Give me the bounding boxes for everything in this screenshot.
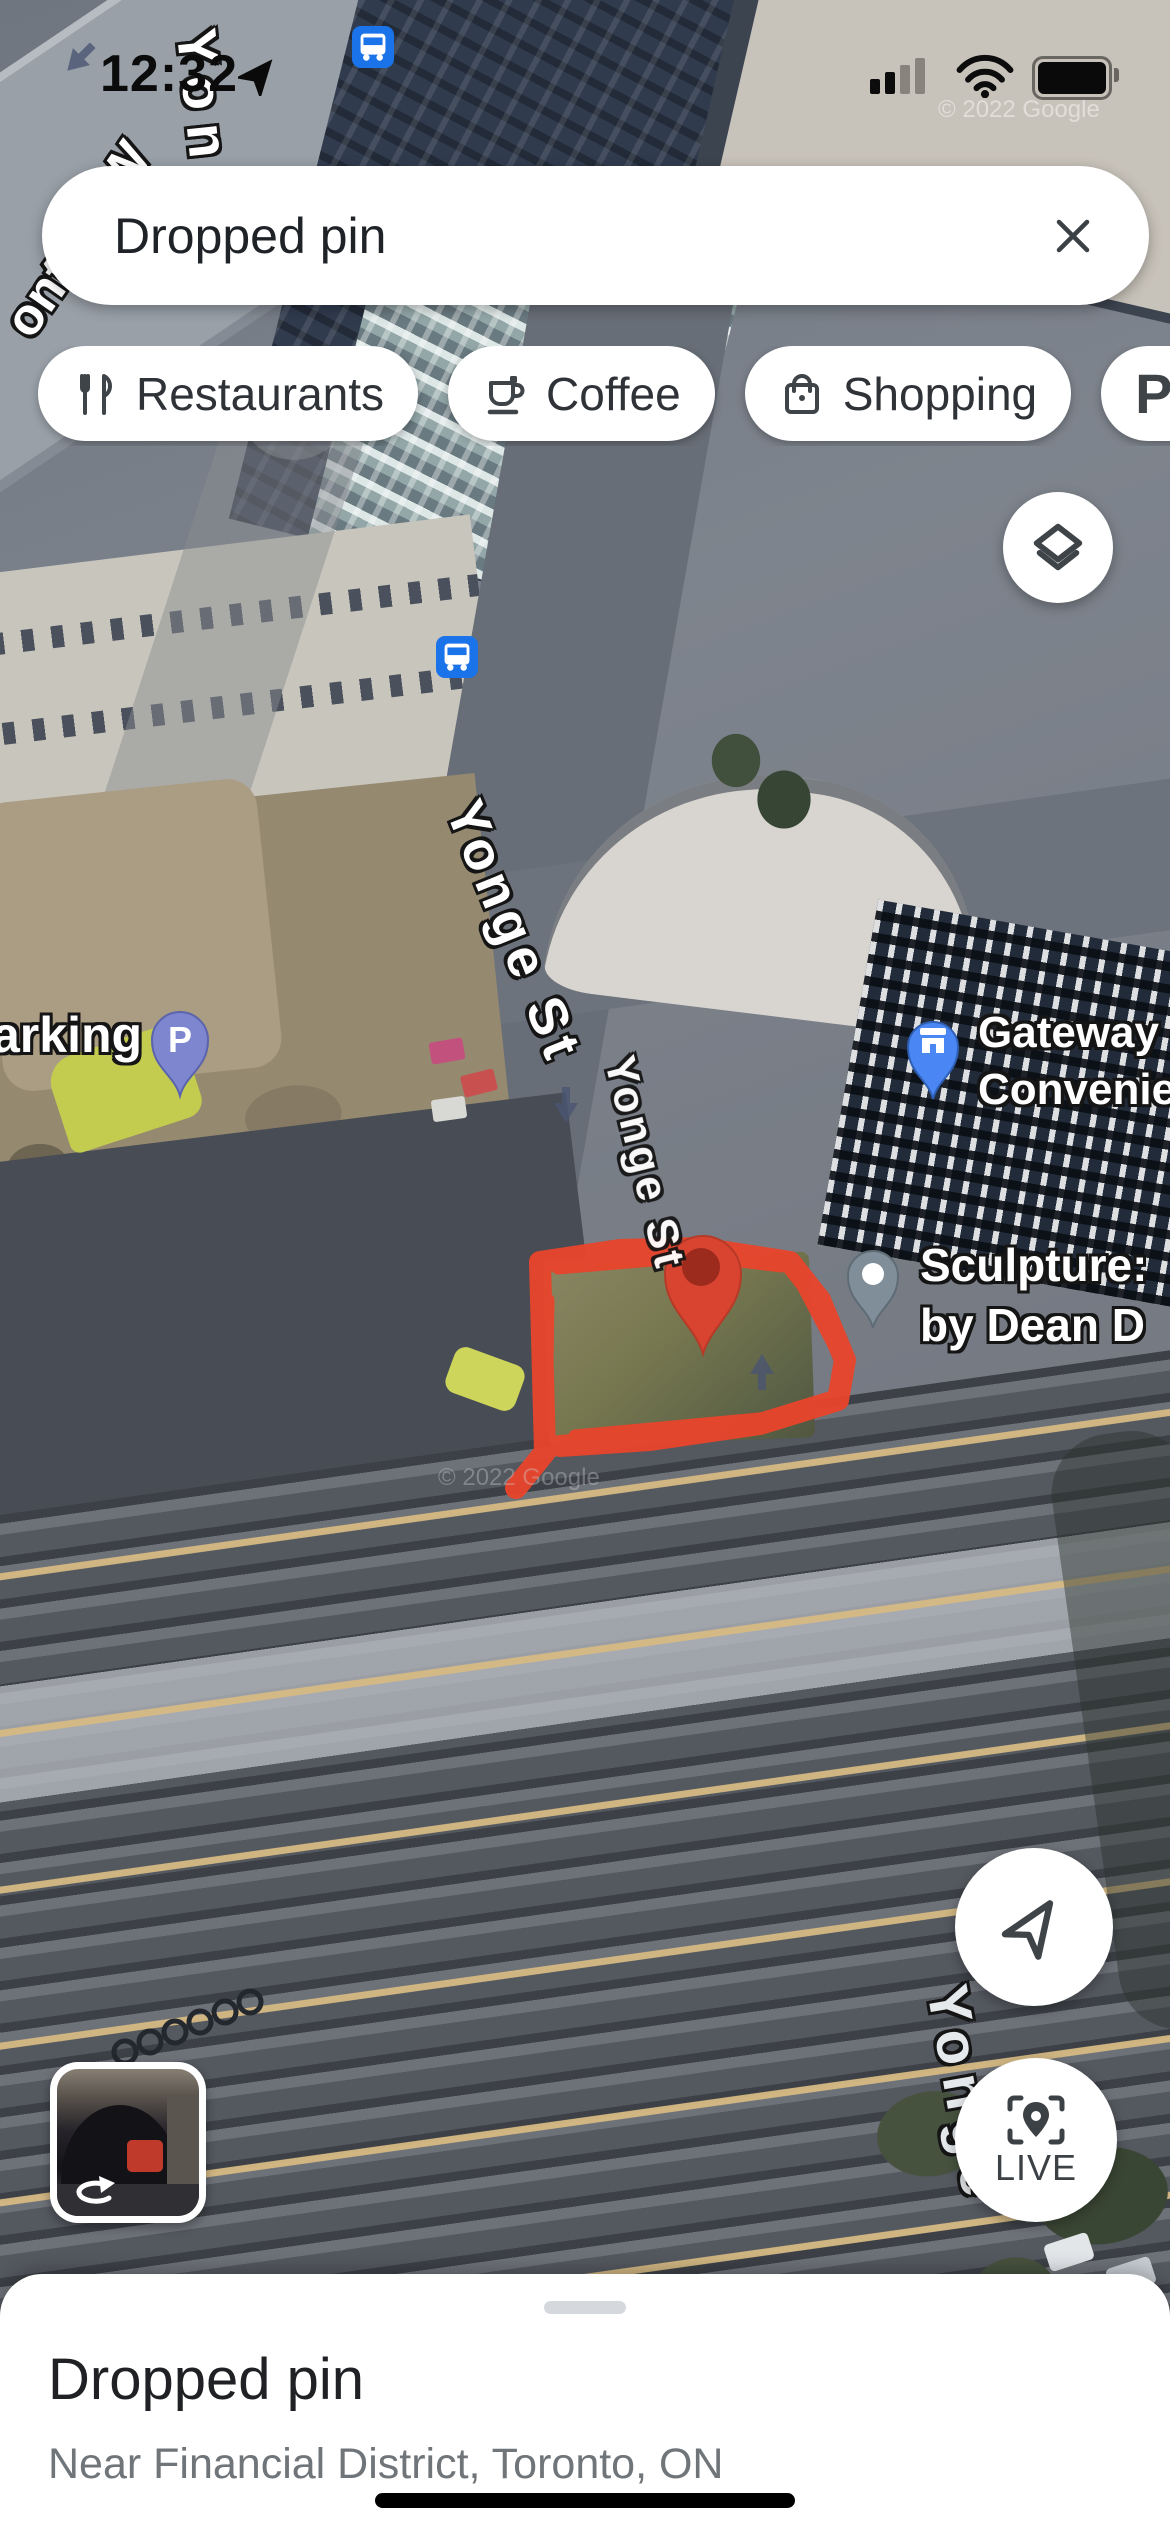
chip-label: Shopping <box>843 367 1037 421</box>
pan-360-icon <box>65 2174 121 2210</box>
chip-parking[interactable]: P Parking <box>1101 346 1170 441</box>
gateway-pin[interactable] <box>908 1022 958 1099</box>
status-bar: 12:32 <box>0 0 1170 130</box>
home-indicator[interactable] <box>375 2493 795 2508</box>
chip-restaurants[interactable]: Restaurants <box>38 346 418 441</box>
parking-pin[interactable]: P <box>152 1012 208 1096</box>
sculpture-pin[interactable] <box>848 1251 898 1328</box>
navigation-arrow-icon <box>997 1890 1071 1964</box>
live-view-icon <box>1004 2091 1068 2149</box>
coffee-icon <box>482 371 528 417</box>
place-subtitle: Near Financial District, Toronto, ON <box>48 2440 724 2489</box>
category-chips: Restaurants Coffee Shopping P Parking <box>0 346 1170 446</box>
status-time: 12:32 <box>100 44 238 104</box>
street-view-preview <box>57 2069 199 2216</box>
google-watermark: © 2022 Google <box>438 1464 600 1492</box>
location-services-arrow-icon <box>238 52 282 96</box>
parking-icon: P <box>1135 361 1170 426</box>
shopping-icon <box>779 371 825 417</box>
svg-text:P: P <box>168 1019 192 1060</box>
poi-label-gateway-line1: Gateway <box>978 1004 1170 1061</box>
poi-label-sculpture-line2: by Dean D <box>920 1296 1147 1356</box>
chip-coffee[interactable]: Coffee <box>448 346 715 441</box>
sheet-drag-handle[interactable] <box>544 2301 626 2314</box>
map-layers-button[interactable] <box>1003 492 1113 603</box>
search-input[interactable]: Dropped pin <box>114 207 1047 265</box>
close-icon[interactable] <box>1047 210 1099 262</box>
poi-label-sculpture-line1: Sculpture: <box>920 1236 1147 1296</box>
battery-tip <box>1114 68 1119 82</box>
poi-label-sculpture[interactable]: Sculpture: by Dean D <box>920 1236 1147 1356</box>
chip-shopping[interactable]: Shopping <box>745 346 1071 441</box>
place-bottom-sheet[interactable]: Dropped pin Near Financial District, Tor… <box>0 2274 1170 2532</box>
red-van <box>127 2140 163 2172</box>
search-bar[interactable]: Dropped pin <box>42 166 1149 305</box>
poi-label-gateway[interactable]: Gateway Convenience <box>978 1004 1170 1118</box>
track-rings <box>114 1991 261 2063</box>
transit-stop-icon[interactable] <box>436 636 478 678</box>
restaurants-icon <box>72 371 118 417</box>
wifi-icon <box>956 54 1014 98</box>
live-label: LIVE <box>995 2147 1077 2189</box>
google-maps-app: P <box>0 0 1170 2532</box>
bus-icon <box>436 636 478 678</box>
street-view-thumbnail[interactable] <box>50 2062 206 2223</box>
my-location-button[interactable] <box>955 1848 1113 2006</box>
battery-icon <box>1032 56 1112 100</box>
poi-label-gateway-line2: Convenience <box>978 1061 1170 1118</box>
poi-label-parking[interactable]: arking <box>0 1006 142 1064</box>
layers-icon <box>1027 517 1089 579</box>
cellular-signal-icon <box>870 58 925 94</box>
chip-label: Restaurants <box>136 367 384 421</box>
chip-label: Coffee <box>546 367 681 421</box>
place-title: Dropped pin <box>48 2346 364 2413</box>
live-view-button[interactable]: LIVE <box>955 2058 1117 2222</box>
